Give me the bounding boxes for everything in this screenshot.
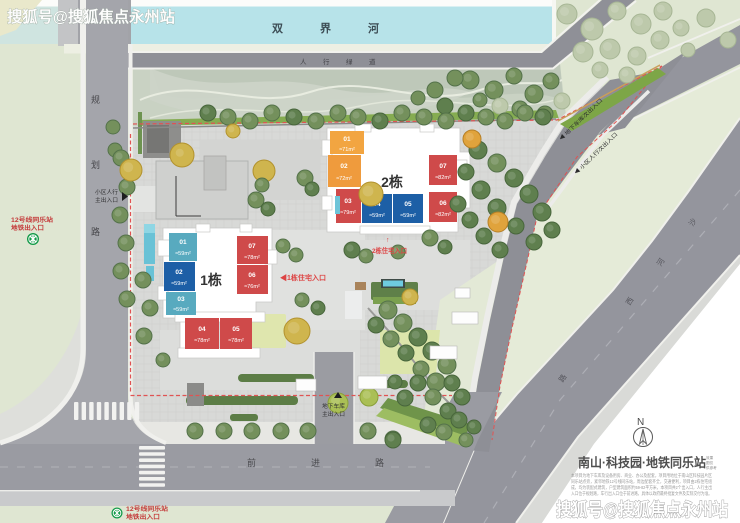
svg-text:02: 02: [340, 163, 348, 170]
svg-text:2栋住宅入口: 2栋住宅入口: [372, 246, 407, 255]
svg-text:03: 03: [177, 296, 185, 303]
svg-text:06: 06: [439, 200, 447, 207]
svg-text:≈59m²: ≈59m²: [369, 213, 385, 219]
svg-text:小区人行: 小区人行: [95, 188, 119, 196]
svg-text:≈78m²: ≈78m²: [228, 338, 244, 344]
svg-text:行: 行: [323, 57, 330, 66]
svg-text:01: 01: [343, 136, 351, 143]
svg-text:同乐站点旁，紧邻地铁12号线同乐站，周边配套齐全，交通便利，: 同乐站点旁，紧邻地铁12号线同乐站，周边配套齐全，交通便利，项目由2栋住宅组: [571, 478, 713, 485]
svg-text:06: 06: [248, 272, 256, 279]
svg-text:地下车库: 地下车库: [322, 402, 346, 410]
svg-text:2栋: 2栋: [381, 174, 403, 190]
svg-text:图仅: 图仅: [706, 460, 714, 465]
svg-text:≈71m²: ≈71m²: [339, 147, 355, 153]
svg-text:1栋: 1栋: [200, 272, 222, 288]
svg-text:本项目为地下车库及设备用房、商业、办公及配套，项目用地位于南: 本项目为地下车库及设备用房、商业、办公及配套，项目用地位于南山区科技园片区: [571, 472, 713, 479]
svg-text:≈79m²: ≈79m²: [340, 210, 356, 216]
svg-text:≈82m²: ≈82m²: [435, 212, 451, 218]
svg-text:↑: ↑: [386, 237, 390, 244]
svg-text:界: 界: [320, 22, 331, 35]
svg-text:绿: 绿: [346, 57, 353, 66]
svg-text:双: 双: [272, 22, 283, 35]
svg-text:效果: 效果: [706, 455, 714, 460]
svg-text:≈59m²: ≈59m²: [175, 251, 191, 257]
svg-text:12号线同乐站: 12号线同乐站: [11, 216, 54, 224]
svg-text:03: 03: [344, 198, 352, 205]
svg-text:05: 05: [232, 326, 240, 333]
svg-text:进: 进: [311, 458, 320, 468]
svg-text:路: 路: [375, 457, 384, 468]
svg-text:≈59m²: ≈59m²: [173, 307, 189, 313]
svg-text:≈78m²: ≈78m²: [194, 338, 210, 344]
svg-text:成，均为装配式建筑，户型建筑面积约59-82平方米，本项目共: 成，均为装配式建筑，户型建筑面积约59-82平方米，本项目共2个出入口，人行主出: [571, 484, 712, 491]
svg-text:≈72m²: ≈72m²: [336, 176, 352, 182]
svg-text:路: 路: [91, 226, 100, 237]
svg-text:≈82m²: ≈82m²: [435, 175, 451, 181]
svg-text:主出入口: 主出入口: [95, 196, 118, 204]
svg-text:≈78m²: ≈78m²: [244, 255, 260, 261]
svg-text:N: N: [637, 417, 644, 428]
svg-text:道: 道: [369, 57, 376, 66]
svg-text:≈59m²: ≈59m²: [171, 281, 187, 287]
svg-text:07: 07: [439, 163, 447, 170]
svg-text:入口位于规划路，车行出入口位于前进路，具体以政府最终批复文件: 入口位于规划路，车行出入口位于前进路，具体以政府最终批复文件及实际交付为准。: [571, 490, 712, 497]
svg-text:南山·科技园·地铁同乐站: 南山·科技园·地铁同乐站: [578, 455, 706, 470]
svg-text:地铁出入口: 地铁出入口: [11, 224, 44, 232]
svg-text:供参考: 供参考: [706, 465, 717, 470]
svg-text:搜狐号@搜狐焦点永州站: 搜狐号@搜狐焦点永州站: [556, 499, 728, 520]
svg-text:前: 前: [247, 457, 256, 468]
svg-text:02: 02: [175, 269, 183, 276]
svg-text:04: 04: [198, 326, 206, 333]
svg-text:05: 05: [404, 201, 412, 208]
svg-text:地铁出入口: 地铁出入口: [126, 513, 160, 521]
svg-text:≈59m²: ≈59m²: [400, 213, 416, 219]
svg-text:◀1栋住宅入口: ◀1栋住宅入口: [280, 273, 326, 282]
svg-text:搜狐号@搜狐焦点永州站: 搜狐号@搜狐焦点永州站: [7, 7, 175, 26]
svg-text:12号线同乐站: 12号线同乐站: [126, 505, 168, 513]
svg-text:人: 人: [300, 58, 307, 66]
svg-text:07: 07: [248, 243, 256, 250]
svg-text:规: 规: [91, 95, 100, 105]
svg-text:01: 01: [179, 239, 187, 246]
svg-text:主出入口: 主出入口: [322, 410, 345, 418]
svg-text:划: 划: [91, 159, 100, 170]
svg-text:河: 河: [368, 21, 379, 35]
svg-text:≈76m²: ≈76m²: [244, 284, 260, 290]
